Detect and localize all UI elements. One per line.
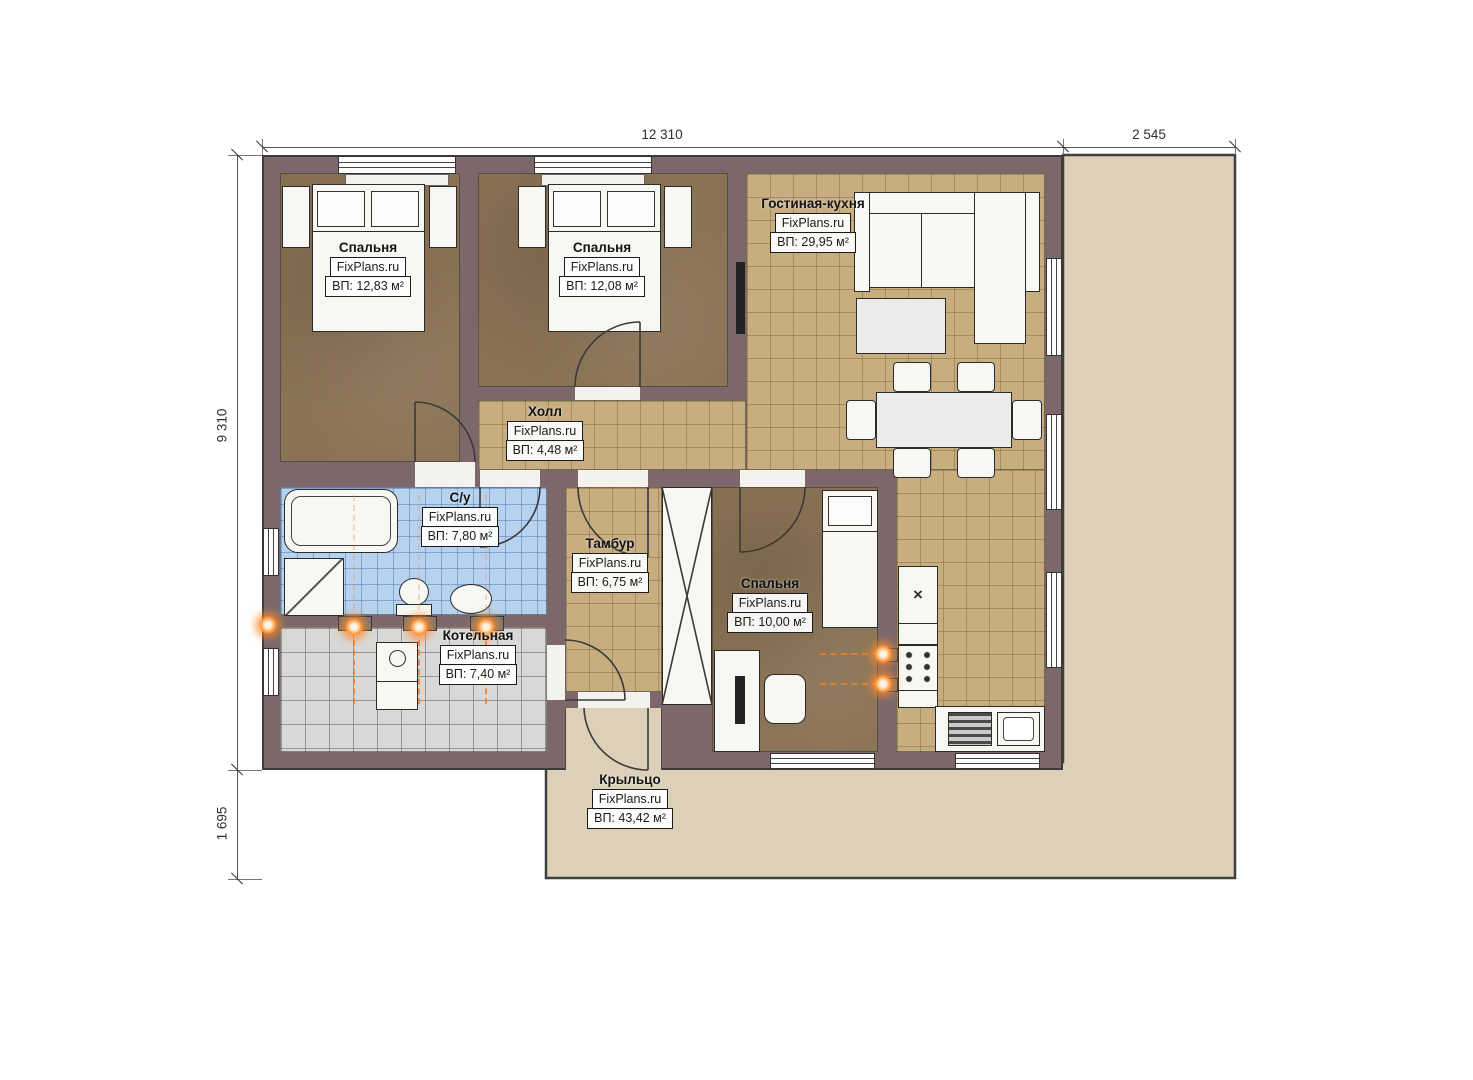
brand-box: FixPlans.ru: [732, 593, 809, 614]
area-box: ВП: 12,08 м²: [559, 276, 645, 297]
room-name: Спальня: [339, 240, 397, 255]
sofa-armrest: [1025, 192, 1040, 292]
office-chair: [764, 674, 806, 724]
toilet-tank: [396, 604, 432, 616]
area-box: ВП: 12,83 м²: [325, 276, 411, 297]
brand-box: FixPlans.ru: [330, 257, 407, 278]
dining-chair: [846, 400, 876, 440]
sofa-seat: [921, 213, 975, 288]
dimension-line-top-right: [1063, 147, 1235, 148]
dimension-bottom-left-value: 1 695: [215, 769, 230, 879]
kitchen-counter: [898, 690, 938, 708]
window-living-1: [1046, 258, 1062, 356]
radiator-glow-icon: [874, 675, 892, 693]
dining-chair: [893, 362, 931, 392]
brand-box: FixPlans.ru: [775, 213, 852, 234]
heat-line: [353, 640, 355, 704]
bathroom-door-opening: [480, 470, 540, 487]
bathtub: [284, 489, 398, 553]
room-label-bedroom1: Спальня FixPlans.ru ВП: 12,83 м²: [298, 240, 438, 297]
window-bedroom3: [770, 753, 875, 769]
room-label-vestibule: Тамбур FixPlans.ru ВП: 6,75 м²: [542, 536, 678, 593]
window-boiler: [263, 648, 279, 696]
dish-rack: [948, 712, 992, 746]
dining-chair: [1012, 400, 1042, 440]
brand-box: FixPlans.ru: [572, 553, 649, 574]
desk: [714, 650, 760, 752]
dimension-left-value: 9 310: [215, 371, 230, 481]
extension-line: [228, 155, 262, 156]
brand-box: FixPlans.ru: [564, 257, 641, 278]
area-box: ВП: 29,95 м²: [770, 232, 856, 253]
dining-chair: [957, 362, 995, 392]
radiator-glow-icon: [259, 616, 277, 634]
pillow: [607, 191, 655, 227]
room-name: С/у: [449, 490, 470, 505]
pillow: [553, 191, 601, 227]
room-label-bathroom: С/у FixPlans.ru ВП: 7,80 м²: [392, 490, 528, 547]
brand-box: FixPlans.ru: [422, 507, 499, 528]
entry-door-opening: [578, 692, 650, 708]
fridge-cross-icon: ×: [913, 585, 923, 605]
room-name: Тамбур: [586, 536, 635, 551]
room-label-bedroom2: Спальня FixPlans.ru ВП: 12,08 м²: [532, 240, 672, 297]
dimension-line-left: [237, 155, 238, 770]
area-box: ВП: 4,48 м²: [506, 440, 585, 461]
area-box: ВП: 43,42 м²: [587, 808, 673, 829]
dimension-line-bottom-left: [237, 770, 238, 880]
sink-basin: [1003, 717, 1034, 741]
dimension-line-top: [262, 147, 1063, 148]
boiler-dial: [389, 650, 406, 667]
toilet-bowl: [399, 578, 429, 606]
bedroom3-door-opening: [740, 470, 805, 487]
room-label-hall: Холл FixPlans.ru ВП: 4,48 м²: [477, 404, 613, 461]
window-kitchen-south: [955, 753, 1040, 769]
window-bedroom2: [534, 156, 652, 174]
nightstand: [429, 186, 457, 248]
tv: [736, 262, 745, 334]
pillow: [317, 191, 365, 227]
pillow: [371, 191, 419, 227]
boiler-door-opening: [547, 645, 565, 700]
shower-tray: [284, 558, 344, 616]
brand-box: FixPlans.ru: [440, 645, 517, 666]
heat-line: [820, 683, 878, 685]
entry-alcove: [565, 708, 662, 770]
room-label-porch: Крыльцо FixPlans.ru ВП: 43,42 м²: [562, 772, 698, 829]
extension-line: [228, 770, 262, 771]
monitor: [735, 676, 745, 724]
nightstand: [664, 186, 692, 248]
room-name: Спальня: [741, 576, 799, 591]
room-name: Спальня: [573, 240, 631, 255]
kitchen-counter: [898, 623, 938, 645]
nightstand: [282, 186, 310, 248]
brand-box: FixPlans.ru: [507, 421, 584, 442]
area-box: ВП: 7,80 м²: [421, 526, 500, 547]
nightstand: [518, 186, 546, 248]
dimension-top-value: 12 310: [612, 127, 712, 142]
window-living-2: [1046, 414, 1062, 510]
dimension-top-right-value: 2 545: [1099, 127, 1199, 142]
room-name: Холл: [528, 404, 562, 419]
blanket-edge: [823, 531, 877, 532]
radiator-glow-icon: [874, 645, 892, 663]
window-kitchen: [1046, 572, 1062, 668]
heat-line: [820, 653, 878, 655]
heat-line-faint: [353, 495, 355, 610]
area-box: ВП: 10,00 м²: [727, 612, 813, 633]
blanket-edge: [313, 231, 424, 232]
coffee-table: [856, 298, 946, 354]
dining-chair: [893, 448, 931, 478]
room-name: Крыльцо: [599, 772, 660, 787]
room-label-bedroom3: Спальня FixPlans.ru ВП: 10,00 м²: [702, 576, 838, 633]
kitchen-sink: [997, 712, 1040, 746]
dining-chair: [957, 448, 995, 478]
bedroom2-door-opening: [575, 387, 640, 400]
area-box: ВП: 6,75 м²: [571, 572, 650, 593]
bedroom1-door-opening: [415, 462, 475, 487]
extension-line: [228, 879, 262, 880]
room-label-living-kitchen: Гостиная-кухня FixPlans.ru ВП: 29,95 м²: [740, 196, 886, 253]
sofa-chaise: [974, 192, 1026, 344]
room-name: Котельная: [443, 628, 514, 643]
brand-box: FixPlans.ru: [592, 789, 669, 810]
window-bedroom1: [338, 156, 456, 174]
room-label-boiler: Котельная FixPlans.ru ВП: 7,40 м²: [410, 628, 546, 685]
pillow: [828, 496, 872, 526]
window-bathroom: [263, 528, 279, 576]
room-name: Гостиная-кухня: [761, 196, 864, 211]
radiator-glow-icon: [345, 618, 363, 636]
area-box: ВП: 7,40 м²: [439, 664, 518, 685]
stove: [898, 645, 938, 691]
vestibule-door-opening: [578, 470, 648, 487]
floor-plan-canvas: ×: [0, 0, 1473, 1080]
fridge: ×: [898, 566, 938, 624]
dining-table: [876, 392, 1012, 448]
blanket-edge: [549, 231, 660, 232]
